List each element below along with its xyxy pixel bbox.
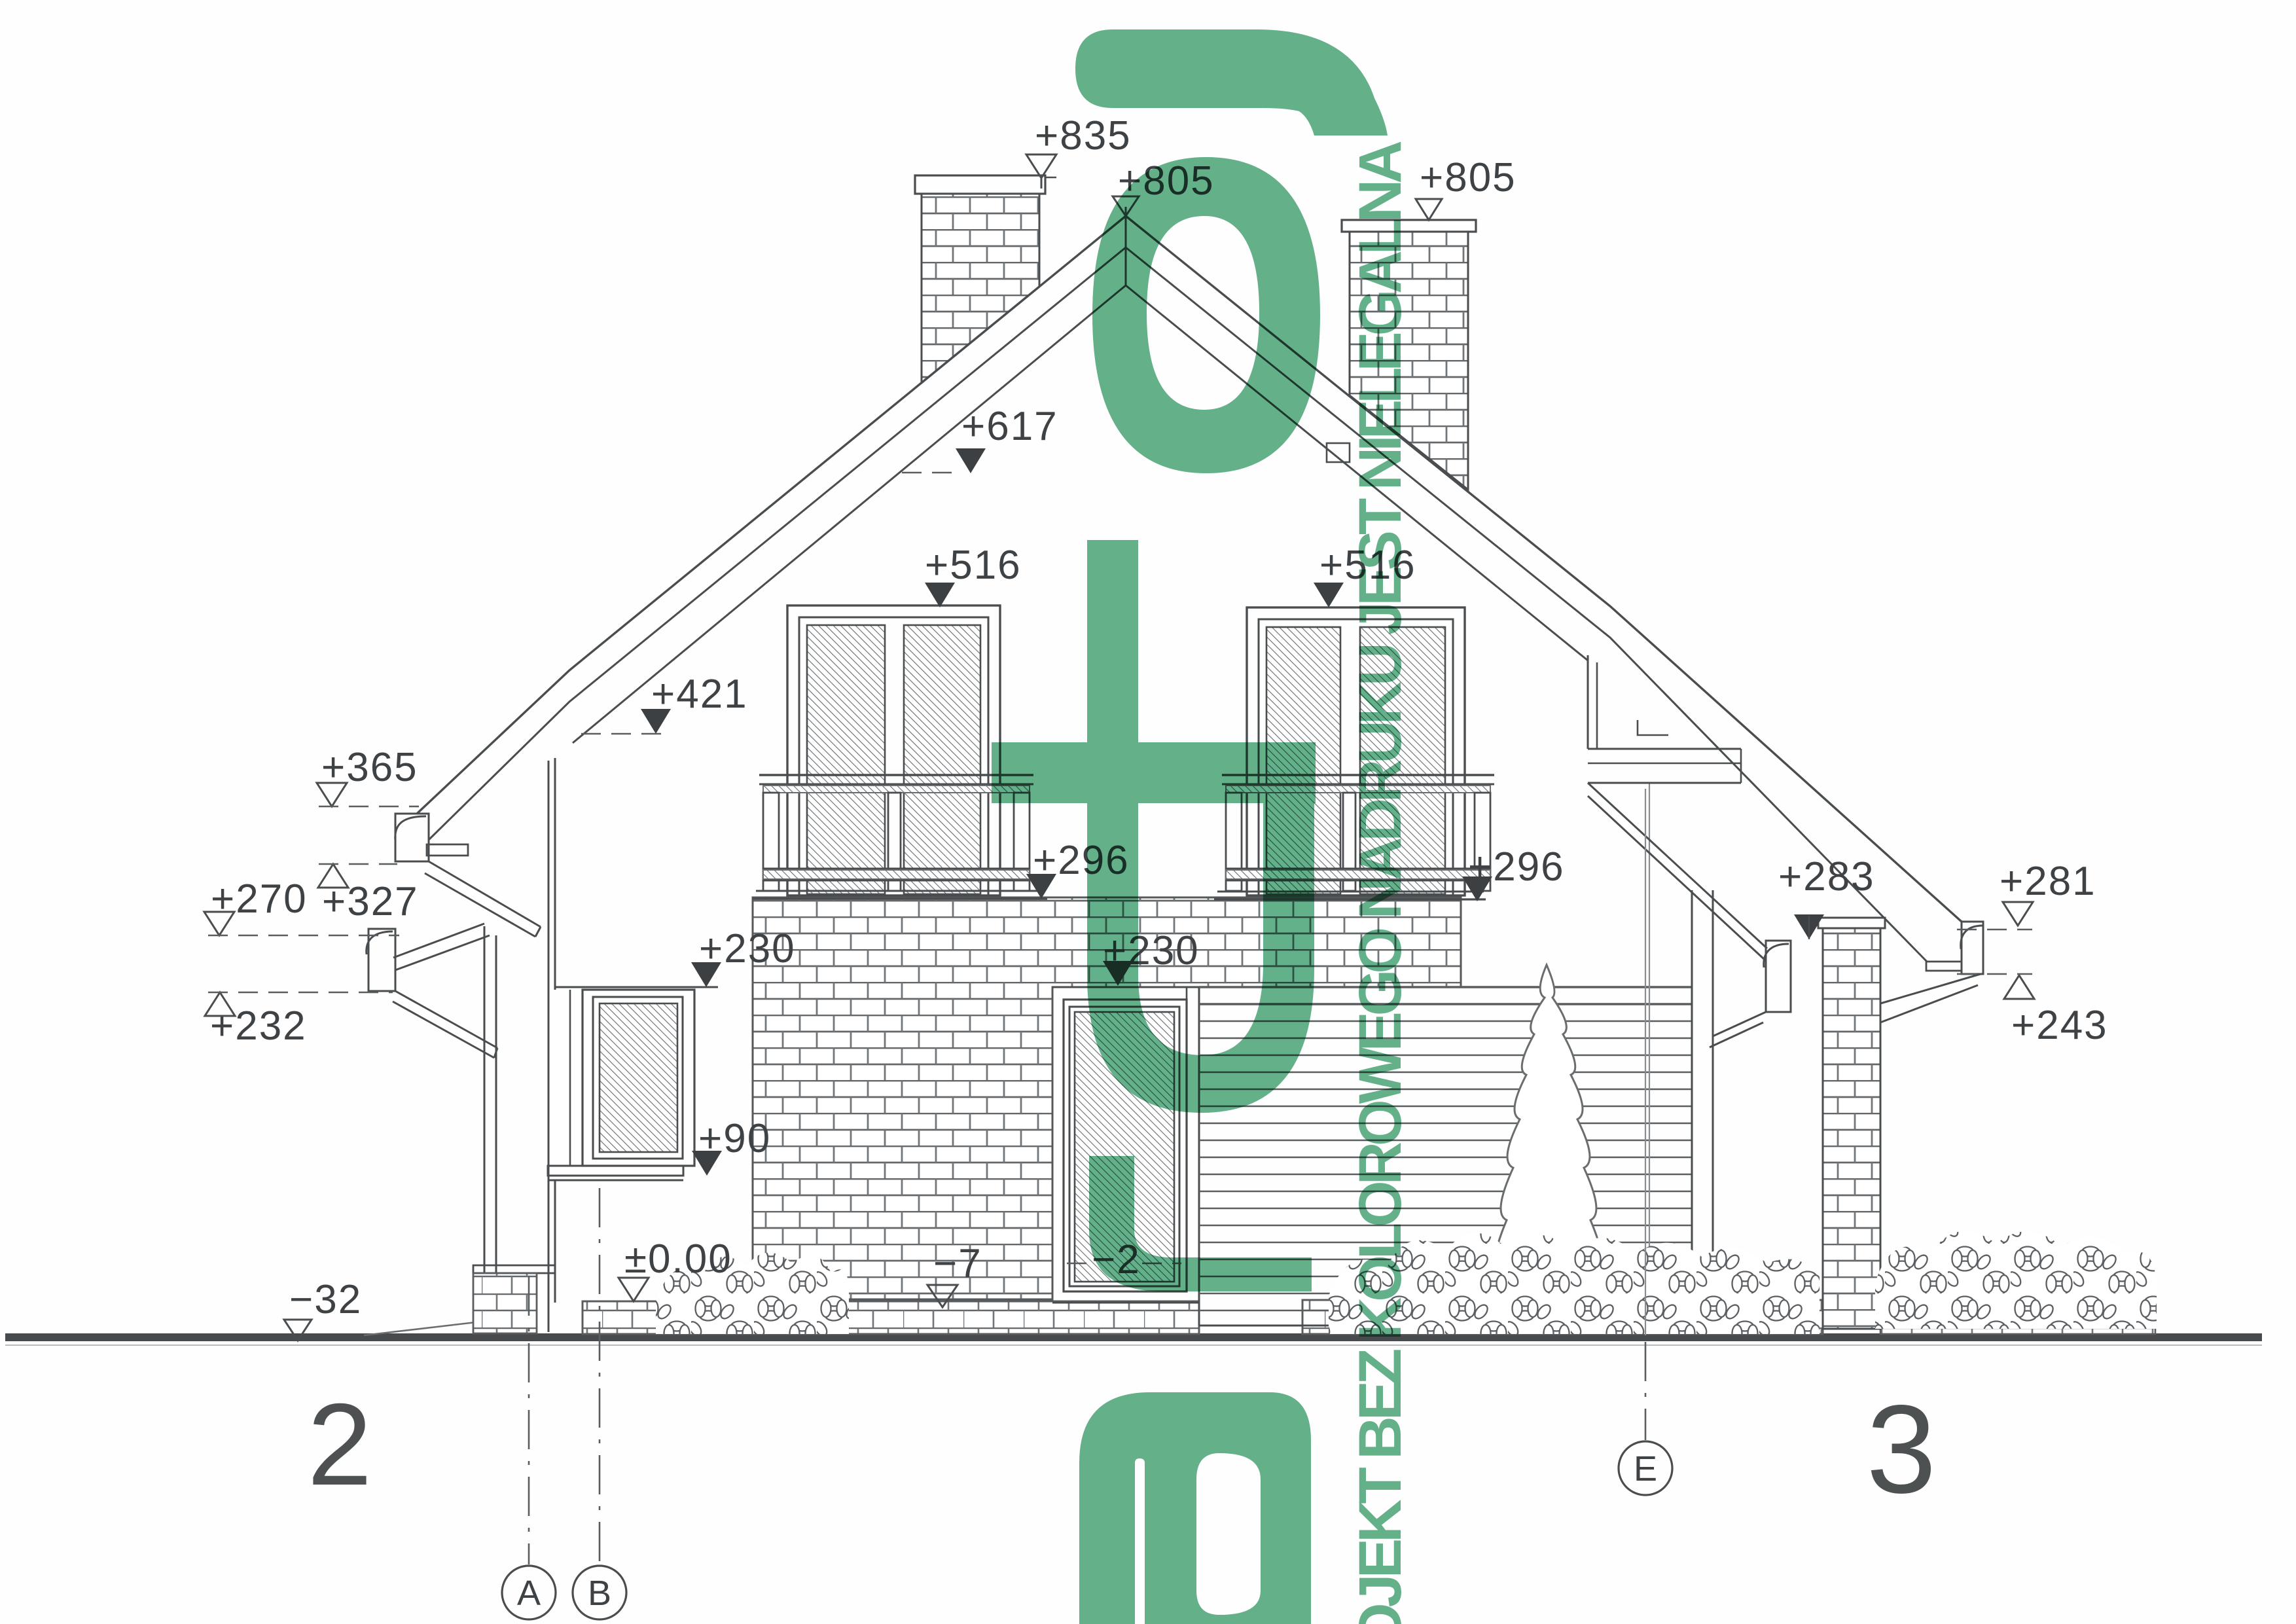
svg-text:±0.00: ±0.00 [624,1236,732,1282]
svg-text:+283: +283 [1778,854,1875,899]
svg-text:+516: +516 [925,543,1022,588]
svg-text:+232: +232 [210,1003,307,1049]
svg-text:+327: +327 [322,879,419,924]
svg-text:+835: +835 [1035,113,1132,158]
svg-text:−32: −32 [289,1277,362,1322]
svg-text:+617: +617 [961,404,1058,449]
svg-text:+281: +281 [2000,859,2096,904]
svg-text:+805: +805 [1420,155,1516,200]
svg-text:A: A [517,1574,541,1613]
svg-text:OJEKT BEZ KOLOROWEGO NADRUKU J: OJEKT BEZ KOLOROWEGO NADRUKU JEST NIELEG… [1347,141,1414,1624]
svg-text:+243: +243 [2011,1003,2108,1048]
svg-text:B: B [588,1574,611,1613]
svg-text:−7: −7 [933,1241,982,1286]
svg-text:3: 3 [1867,1379,1937,1519]
svg-text:E: E [1634,1449,1657,1489]
svg-text:2: 2 [308,1379,372,1509]
svg-text:+270: +270 [211,876,308,922]
